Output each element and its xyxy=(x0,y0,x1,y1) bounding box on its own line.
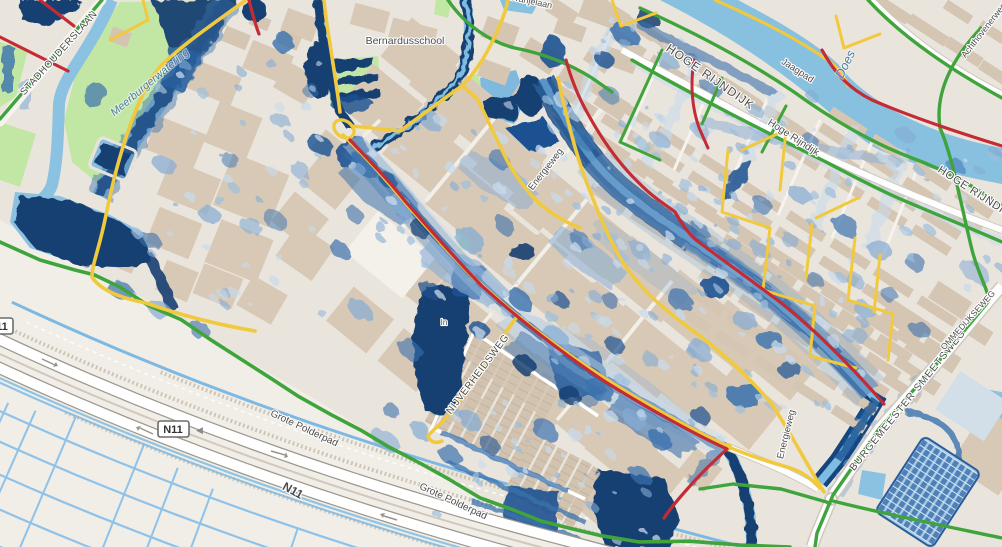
svg-text:In: In xyxy=(441,318,448,327)
svg-text:◀: ◀ xyxy=(196,425,203,435)
svg-text:N11: N11 xyxy=(0,321,8,333)
svg-text:N11: N11 xyxy=(163,424,183,436)
svg-text:Bernardusschool: Bernardusschool xyxy=(366,35,445,47)
